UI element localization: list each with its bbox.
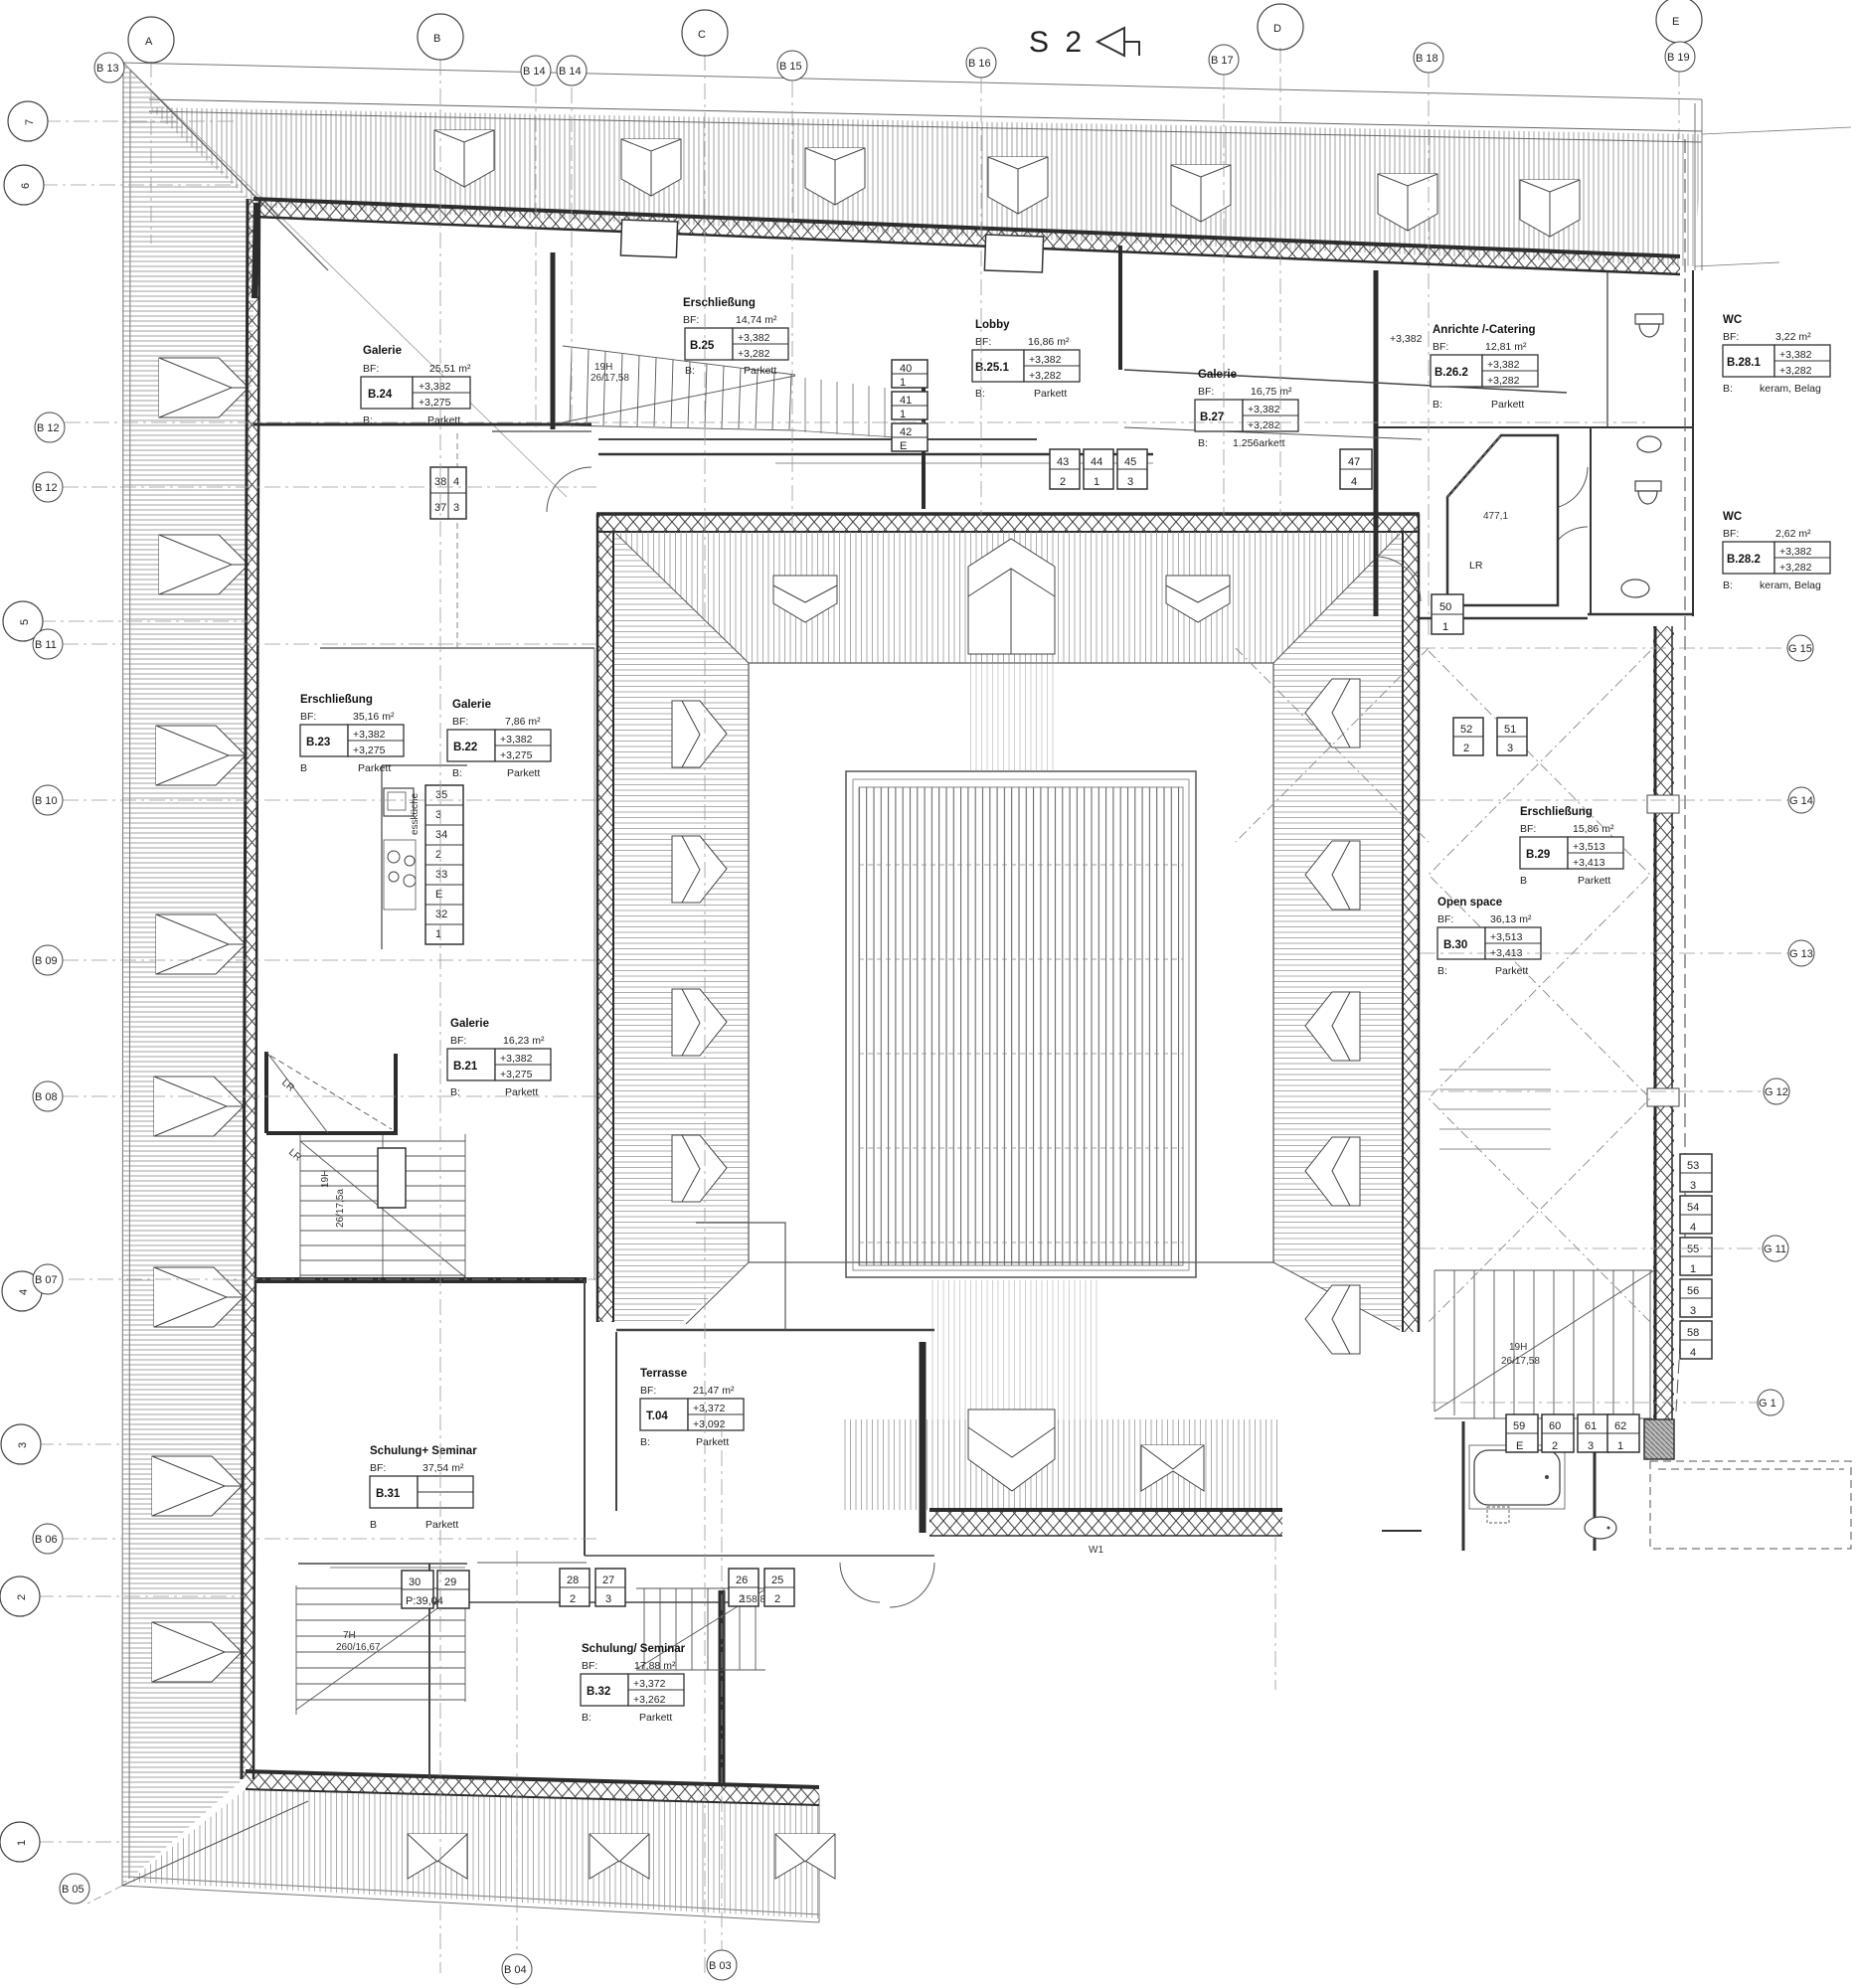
svg-text:B:: B:: [685, 365, 695, 377]
svg-text:12,81 m²: 12,81 m²: [1485, 341, 1527, 353]
svg-text:15,86 m²: 15,86 m²: [1573, 823, 1614, 835]
svg-text:59: 59: [1513, 1420, 1525, 1432]
svg-text:54: 54: [1687, 1202, 1699, 1214]
svg-text:+3,282: +3,282: [1248, 419, 1280, 431]
svg-text:B: B: [370, 1519, 377, 1531]
svg-text:30: 30: [409, 1576, 421, 1588]
svg-text:Parkett: Parkett: [744, 365, 776, 377]
svg-text:B 05: B 05: [62, 1884, 84, 1896]
svg-text:+3,282: +3,282: [1779, 365, 1812, 377]
svg-text:Parkett: Parkett: [427, 414, 460, 426]
svg-text:3: 3: [1588, 1440, 1594, 1452]
svg-text:B.26.2: B.26.2: [1434, 367, 1468, 379]
svg-text:+3,382: +3,382: [1779, 349, 1812, 361]
svg-text:1: 1: [1617, 1440, 1623, 1452]
svg-text:BF:: BF:: [452, 716, 468, 728]
svg-text:62: 62: [1614, 1420, 1626, 1432]
svg-text:B.32: B.32: [587, 1686, 610, 1698]
svg-text:17,88 m²: 17,88 m²: [634, 1660, 676, 1672]
svg-text:B.28.1: B.28.1: [1727, 357, 1761, 369]
svg-text:B.25: B.25: [690, 340, 715, 352]
svg-text:19H: 19H: [320, 1170, 331, 1188]
svg-text:+3,282: +3,282: [1487, 375, 1520, 387]
svg-text:LR: LR: [1469, 560, 1483, 572]
svg-text:+3,275: +3,275: [353, 745, 386, 756]
svg-text:1.256arkett: 1.256arkett: [1233, 437, 1285, 449]
svg-text:Galerie: Galerie: [1198, 369, 1237, 381]
svg-text:3: 3: [1507, 743, 1513, 754]
svg-text:26/17,58: 26/17,58: [591, 373, 629, 384]
svg-text:3: 3: [453, 502, 459, 514]
svg-text:B.29: B.29: [1526, 849, 1550, 861]
svg-text:+3,262: +3,262: [633, 1694, 666, 1706]
svg-text:B 12: B 12: [37, 422, 60, 434]
svg-text:21,47 m²: 21,47 m²: [693, 1385, 735, 1397]
svg-text:B:: B:: [1433, 399, 1442, 411]
svg-text:44: 44: [1091, 456, 1102, 468]
svg-text:Galerie: Galerie: [450, 1018, 489, 1030]
svg-text:keram, Belag: keram, Belag: [1760, 580, 1821, 591]
svg-text:5: 5: [19, 619, 31, 625]
svg-text:B 09: B 09: [35, 955, 58, 967]
svg-text:B.22: B.22: [453, 742, 477, 753]
svg-text:B:: B:: [1723, 383, 1733, 395]
svg-text:61: 61: [1585, 1420, 1597, 1432]
svg-text:3,22 m²: 3,22 m²: [1775, 331, 1811, 343]
svg-text:BF:: BF:: [640, 1385, 656, 1397]
svg-text:B 15: B 15: [779, 61, 802, 73]
svg-text:B 14: B 14: [523, 66, 546, 78]
svg-text:BF:: BF:: [1723, 528, 1739, 540]
svg-text:B 11: B 11: [35, 639, 57, 651]
svg-text:B 19: B 19: [1667, 52, 1690, 64]
svg-text:56: 56: [1687, 1285, 1699, 1297]
svg-text:Parkett: Parkett: [1034, 388, 1067, 400]
svg-text:3: 3: [605, 1593, 611, 1605]
svg-text:B.28.2: B.28.2: [1727, 554, 1761, 566]
svg-text:1: 1: [900, 409, 906, 420]
svg-text:19H: 19H: [594, 362, 612, 373]
svg-text:Parkett: Parkett: [1491, 399, 1524, 411]
svg-text:1: 1: [1690, 1263, 1696, 1275]
svg-text:B 08: B 08: [35, 1091, 58, 1103]
svg-text:29: 29: [444, 1576, 456, 1588]
svg-text:Erschließung: Erschließung: [1520, 806, 1593, 818]
svg-text:Parkett: Parkett: [425, 1519, 458, 1531]
svg-text:33: 33: [435, 869, 447, 881]
svg-text:3: 3: [17, 1442, 29, 1448]
svg-text:2: 2: [774, 1593, 780, 1605]
svg-text:Parkett: Parkett: [696, 1436, 729, 1448]
svg-text:Parkett: Parkett: [639, 1712, 672, 1724]
svg-text:+3,413: +3,413: [1573, 857, 1605, 869]
svg-text:60: 60: [1549, 1420, 1561, 1432]
svg-text:25: 25: [771, 1574, 783, 1586]
svg-text:4: 4: [453, 476, 459, 488]
svg-text:+3,382: +3,382: [1029, 354, 1062, 366]
svg-text:3: 3: [1690, 1305, 1696, 1317]
svg-text:41: 41: [900, 395, 912, 407]
svg-text:B.24: B.24: [368, 389, 393, 401]
svg-text:58: 58: [1687, 1327, 1699, 1339]
svg-text:G 1: G 1: [1759, 1398, 1776, 1409]
svg-text:+3,282: +3,282: [738, 348, 770, 360]
svg-text:B 10: B 10: [35, 795, 58, 807]
svg-text:C: C: [698, 29, 706, 41]
svg-text:37,54 m²: 37,54 m²: [422, 1462, 464, 1474]
svg-text:40: 40: [900, 363, 912, 375]
svg-text:T.04: T.04: [646, 1410, 668, 1422]
svg-text:14,74 m²: 14,74 m²: [736, 314, 777, 326]
svg-text:28: 28: [567, 1574, 579, 1586]
svg-text:G 11: G 11: [1764, 1243, 1786, 1255]
svg-text:Erschließung: Erschließung: [683, 297, 756, 309]
svg-text:A: A: [145, 36, 153, 48]
svg-text:19H: 19H: [1509, 1342, 1527, 1353]
svg-text:36,13 m²: 36,13 m²: [1490, 913, 1532, 925]
svg-text:Terrasse: Terrasse: [640, 1368, 687, 1380]
svg-text:52: 52: [1460, 724, 1472, 736]
svg-text:4: 4: [1690, 1222, 1696, 1234]
svg-text:WC: WC: [1723, 511, 1742, 523]
svg-text:1: 1: [16, 1840, 28, 1846]
svg-text:B 18: B 18: [1416, 53, 1438, 65]
svg-text:B:: B:: [1723, 580, 1733, 591]
svg-text:S 2: S 2: [1029, 26, 1086, 59]
svg-text:B.30: B.30: [1443, 939, 1467, 951]
svg-text:B:: B:: [363, 414, 373, 426]
svg-text:27: 27: [602, 1574, 614, 1586]
svg-text:43: 43: [1057, 456, 1069, 468]
svg-text:158,8: 158,8: [741, 1594, 765, 1605]
svg-text:35: 35: [435, 789, 447, 801]
svg-text:Erschließung: Erschließung: [300, 694, 373, 706]
svg-text:B 16: B 16: [968, 58, 991, 70]
svg-text:W1: W1: [1089, 1545, 1103, 1556]
svg-text:B 07: B 07: [35, 1274, 58, 1286]
svg-text:25,51 m²: 25,51 m²: [429, 363, 471, 375]
svg-text:2: 2: [16, 1594, 28, 1600]
svg-text:BF:: BF:: [1433, 341, 1448, 353]
svg-text:B:: B:: [640, 1436, 650, 1448]
svg-text:7,86 m²: 7,86 m²: [505, 716, 541, 728]
svg-text:B.23: B.23: [306, 737, 330, 748]
svg-text:+3,382: +3,382: [353, 729, 386, 741]
svg-text:35,16 m²: 35,16 m²: [353, 711, 395, 723]
svg-text:51: 51: [1504, 724, 1516, 736]
svg-text:Schulung+ Seminar: Schulung+ Seminar: [370, 1445, 477, 1457]
svg-text:B 13: B 13: [96, 63, 119, 75]
svg-text:B: B: [433, 33, 440, 45]
svg-text:42: 42: [900, 426, 912, 438]
svg-text:47: 47: [1348, 456, 1360, 468]
svg-text:P:39,04: P:39,04: [406, 1595, 443, 1607]
svg-text:B:: B:: [452, 767, 462, 779]
svg-text:BF:: BF:: [1520, 823, 1536, 835]
svg-text:E: E: [1516, 1440, 1523, 1452]
svg-text:45: 45: [1124, 456, 1136, 468]
svg-text:7: 7: [24, 119, 36, 125]
svg-text:32: 32: [435, 909, 447, 920]
svg-text:7H: 7H: [343, 1630, 356, 1641]
svg-text:G 15: G 15: [1788, 643, 1812, 655]
svg-text:34: 34: [435, 829, 447, 841]
svg-text:2: 2: [1463, 743, 1469, 754]
svg-text:E: E: [435, 889, 442, 901]
svg-text:2: 2: [1552, 1440, 1558, 1452]
svg-text:BF:: BF:: [683, 314, 699, 326]
svg-text:16,86 m²: 16,86 m²: [1028, 336, 1070, 348]
svg-text:Schulung/ Seminar: Schulung/ Seminar: [582, 1643, 686, 1655]
svg-text:G 13: G 13: [1789, 948, 1813, 960]
svg-text:B:: B:: [1198, 437, 1208, 449]
svg-text:16,75 m²: 16,75 m²: [1251, 386, 1292, 398]
svg-text:4: 4: [1690, 1347, 1696, 1359]
svg-text:260/16,67: 260/16,67: [336, 1642, 381, 1653]
svg-text:Parkett: Parkett: [1578, 875, 1610, 887]
svg-text:+3,275: +3,275: [500, 749, 533, 761]
svg-text:26/17,58: 26/17,58: [1501, 1356, 1540, 1367]
svg-text:4: 4: [1351, 476, 1357, 488]
svg-text:+3,382: +3,382: [1248, 404, 1280, 415]
svg-text:Lobby: Lobby: [975, 319, 1010, 331]
svg-text:Parkett: Parkett: [1495, 965, 1528, 977]
svg-text:+3,092: +3,092: [693, 1418, 726, 1430]
svg-text:E: E: [1672, 16, 1679, 28]
svg-text:+3,513: +3,513: [1490, 931, 1523, 943]
svg-text:+3,275: +3,275: [419, 397, 451, 409]
svg-text:4: 4: [18, 1289, 30, 1295]
svg-text:B 14: B 14: [559, 66, 582, 78]
svg-text:B:: B:: [582, 1712, 591, 1724]
svg-text:D: D: [1273, 23, 1281, 35]
svg-text:keram, Belag: keram, Belag: [1760, 383, 1821, 395]
svg-text:+3,382: +3,382: [1390, 333, 1423, 345]
svg-text:BF:: BF:: [300, 711, 316, 723]
svg-text:B:: B:: [1437, 965, 1447, 977]
svg-text:Galerie: Galerie: [363, 345, 402, 357]
svg-text:26/17,5a: 26/17,5a: [335, 1189, 346, 1228]
svg-text:2: 2: [570, 1593, 576, 1605]
svg-text:B 03: B 03: [709, 1960, 732, 1972]
svg-text:BF:: BF:: [1437, 913, 1453, 925]
svg-text:essküche: essküche: [410, 792, 421, 835]
svg-text:Galerie: Galerie: [452, 699, 491, 711]
svg-text:55: 55: [1687, 1243, 1699, 1255]
svg-text:B 06: B 06: [35, 1534, 58, 1546]
svg-text:BF:: BF:: [370, 1462, 386, 1474]
svg-text:53: 53: [1687, 1160, 1699, 1172]
svg-text:+3,372: +3,372: [693, 1403, 726, 1414]
svg-text:+3,275: +3,275: [500, 1069, 533, 1080]
svg-text:+3,372: +3,372: [633, 1678, 666, 1690]
svg-text:6: 6: [20, 183, 32, 189]
svg-text:+3,282: +3,282: [1779, 562, 1812, 574]
svg-text:BF:: BF:: [1723, 331, 1739, 343]
svg-text:477,1: 477,1: [1483, 511, 1508, 522]
svg-text:B.25.1: B.25.1: [975, 362, 1009, 374]
svg-text:BF:: BF:: [975, 336, 991, 348]
svg-text:B.27: B.27: [1200, 412, 1224, 423]
svg-text:G 14: G 14: [1789, 795, 1813, 807]
svg-text:B 17: B 17: [1211, 55, 1234, 67]
svg-text:Parkett: Parkett: [358, 762, 391, 774]
svg-text:Anrichte /-Catering: Anrichte /-Catering: [1433, 324, 1536, 336]
svg-text:E: E: [900, 440, 907, 452]
svg-text:+3,382: +3,382: [419, 381, 451, 393]
svg-text:BF:: BF:: [1198, 386, 1214, 398]
svg-text:B: B: [300, 762, 307, 774]
svg-text:+3,382: +3,382: [1779, 546, 1812, 558]
svg-text:16,23 m²: 16,23 m²: [503, 1035, 545, 1047]
svg-text:1: 1: [1094, 476, 1099, 488]
svg-text:B.31: B.31: [376, 1488, 401, 1500]
svg-text:1: 1: [1442, 621, 1448, 633]
svg-text:2,62 m²: 2,62 m²: [1775, 528, 1811, 540]
svg-text:BF:: BF:: [363, 363, 379, 375]
svg-text:3: 3: [1690, 1180, 1696, 1192]
svg-text:26: 26: [736, 1574, 748, 1586]
svg-text:+3,382: +3,382: [500, 734, 533, 745]
svg-text:Parkett: Parkett: [507, 767, 540, 779]
svg-text:B 12: B 12: [35, 482, 58, 494]
svg-text:+3,282: +3,282: [1029, 370, 1062, 382]
svg-text:BF:: BF:: [582, 1660, 597, 1672]
svg-text:+3,382: +3,382: [1487, 359, 1520, 371]
svg-text:B 04: B 04: [504, 1964, 527, 1976]
svg-text:Open space: Open space: [1437, 897, 1502, 909]
svg-text:+3,382: +3,382: [738, 332, 770, 344]
svg-text:+3,382: +3,382: [500, 1053, 533, 1065]
svg-text:+3,513: +3,513: [1573, 841, 1605, 853]
svg-text:WC: WC: [1723, 314, 1742, 326]
svg-text:G 12: G 12: [1765, 1086, 1788, 1098]
svg-text:B: B: [1520, 875, 1527, 887]
svg-text:B:: B:: [975, 388, 985, 400]
svg-text:1: 1: [900, 377, 906, 389]
svg-text:3: 3: [1127, 476, 1133, 488]
svg-text:2: 2: [1060, 476, 1066, 488]
svg-text:B.21: B.21: [453, 1061, 478, 1073]
svg-text:BF:: BF:: [450, 1035, 466, 1047]
svg-text:50: 50: [1439, 601, 1451, 613]
